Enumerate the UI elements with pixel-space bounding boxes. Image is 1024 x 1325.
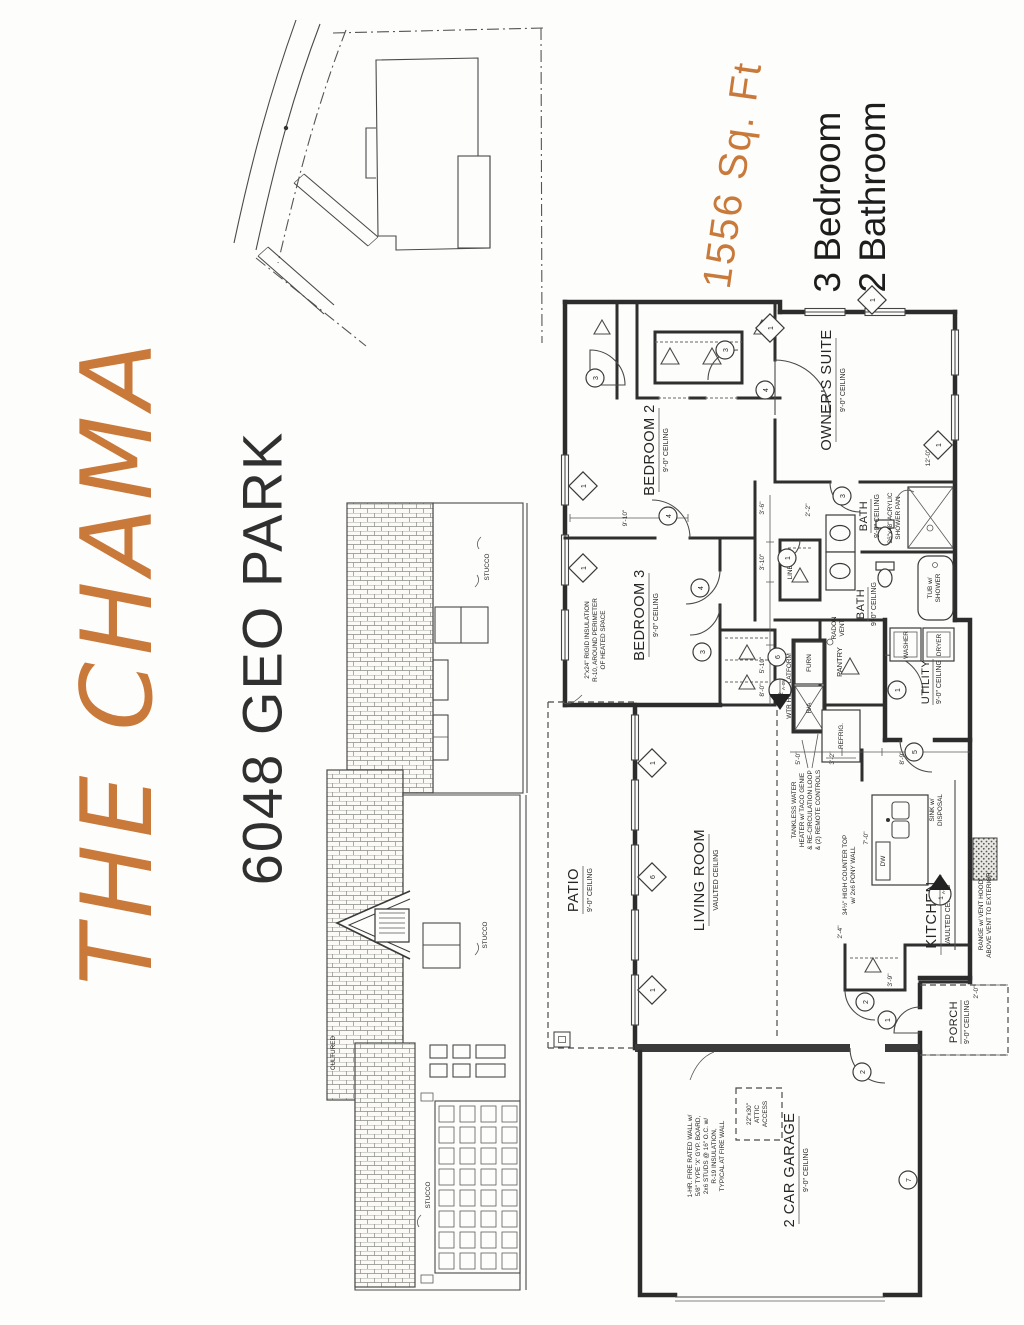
annotation-counter: 34½" HIGH COUNTER TOP w/ 2x6 PONY WALL xyxy=(841,835,857,916)
svg-text:3'-9": 3'-9" xyxy=(887,973,894,987)
svg-text:SINK w/: SINK w/ xyxy=(929,798,936,821)
svg-text:5: 5 xyxy=(912,750,919,754)
room-label-owners-suite: OWNER'S SUITE 9'-0" CEILING xyxy=(819,329,847,450)
svg-text:TANKLESS WATER: TANKLESS WATER xyxy=(791,781,798,838)
svg-text:DRYER: DRYER xyxy=(936,633,943,656)
stucco-label: STUCCO xyxy=(425,1181,432,1208)
square-footage: 1556 Sq. Ft xyxy=(695,59,771,292)
svg-text:DW: DW xyxy=(880,855,887,867)
room-label-patio: PATIO 9'-0" CEILING xyxy=(566,866,594,914)
svg-text:BEDROOM 2: BEDROOM 2 xyxy=(642,404,658,496)
bathroom-count: 2 Bathroom xyxy=(850,101,895,292)
bed-bath-summary: 3 Bedroom 2 Bathroom xyxy=(805,101,895,292)
exterior-walls xyxy=(565,302,970,1052)
svg-text:R/A: R/A xyxy=(806,702,813,713)
label-pantry: PANTRY xyxy=(835,647,844,677)
svg-text:1: 1 xyxy=(650,761,657,765)
svg-text:5/8" TYPE 'X' GYP. BOARD,: 5/8" TYPE 'X' GYP. BOARD, xyxy=(695,1116,702,1197)
stucco-label: STUCCO xyxy=(482,921,489,948)
svg-text:ACCESS: ACCESS xyxy=(762,1101,769,1127)
svg-text:2: 2 xyxy=(860,1070,867,1074)
svg-text:3: 3 xyxy=(700,650,707,654)
svg-text:1: 1 xyxy=(768,326,775,330)
site-driveway xyxy=(258,174,378,314)
garage-walls xyxy=(635,1048,920,1301)
svg-text:2"x24" RIGID INSULATION: 2"x24" RIGID INSULATION xyxy=(584,601,591,679)
svg-text:OF HEATED SPACE: OF HEATED SPACE xyxy=(600,610,607,669)
elevation-side: STUCCO xyxy=(347,503,527,793)
svg-text:3'-10": 3'-10" xyxy=(759,553,766,570)
room-label-bath1: BATH 9'-0" CEILING xyxy=(858,494,881,538)
cultured-stone-label: CULTURED xyxy=(330,1035,337,1070)
address-title: 6048 GEO PARK xyxy=(230,431,295,886)
svg-text:1: 1 xyxy=(785,556,792,560)
svg-text:REFRIG.: REFRIG. xyxy=(838,723,845,749)
svg-text:2 CAR GARAGE: 2 CAR GARAGE xyxy=(782,1113,798,1228)
svg-text:w/ 2x6 PONY WALL: w/ 2x6 PONY WALL xyxy=(850,846,857,905)
svg-text:ABOVE VENT TO EXTERIOR: ABOVE VENT TO EXTERIOR xyxy=(986,872,993,958)
room-label-utility: UTILITY 9'-0" CEILING xyxy=(920,659,943,705)
annotation-shower-pan: 36"x48" ACRYLIC SHOWER PAN xyxy=(887,492,902,543)
svg-text:1: 1 xyxy=(938,896,945,900)
svg-text:PORCH: PORCH xyxy=(948,1001,960,1043)
room-label-living: LIVING ROOM VAULTED CEILING xyxy=(692,829,720,931)
svg-text:A-05: A-05 xyxy=(781,680,787,690)
svg-text:9'-0" CEILING: 9'-0" CEILING xyxy=(874,494,881,538)
firewall-leader xyxy=(690,1052,714,1080)
room-label-bath2: BATH 9'-0" CEILING xyxy=(855,582,878,626)
svg-text:9'-0" CEILING: 9'-0" CEILING xyxy=(803,1148,810,1192)
tankless-leader xyxy=(802,734,818,768)
svg-text:2'-4": 2'-4" xyxy=(837,925,844,939)
svg-text:R-10, AROUND PERIMETER: R-10, AROUND PERIMETER xyxy=(592,598,599,682)
svg-text:SHOWER PAN: SHOWER PAN xyxy=(895,496,902,540)
toilet xyxy=(876,562,894,587)
svg-text:9'-0" CEILING: 9'-0" CEILING xyxy=(840,368,847,412)
svg-text:UTILITY: UTILITY xyxy=(920,660,932,705)
floor-plan: OWNER'S SUITE 9'-0" CEILING BEDROOM 2 9'… xyxy=(540,290,1024,1325)
stucco-label: STUCCO xyxy=(484,553,491,580)
shower-pan xyxy=(908,487,953,548)
svg-text:7'-0": 7'-0" xyxy=(863,831,870,845)
svg-text:& RE-CIRCULATION LOOP: & RE-CIRCULATION LOOP xyxy=(807,770,814,849)
site-house-footprint xyxy=(366,58,490,250)
svg-text:RADON: RADON xyxy=(831,616,838,639)
elevation-drawings: STUCCO xyxy=(315,495,545,1300)
svg-text:OWNER'S SUITE: OWNER'S SUITE xyxy=(819,329,835,450)
svg-text:34½" HIGH COUNTER TOP: 34½" HIGH COUNTER TOP xyxy=(841,835,849,916)
svg-text:1: 1 xyxy=(581,484,588,488)
svg-text:2: 2 xyxy=(863,1000,870,1004)
svg-text:3: 3 xyxy=(840,494,847,498)
svg-text:& (2) REMOTE CONTROLS: & (2) REMOTE CONTROLS xyxy=(815,770,822,850)
site-plan xyxy=(228,8,548,348)
svg-text:4: 4 xyxy=(698,586,705,590)
annotation-attic: 22"x30" ATTIC ACCESS xyxy=(746,1101,769,1127)
svg-text:9'-0" CEILING: 9'-0" CEILING xyxy=(936,660,943,704)
svg-text:4: 4 xyxy=(763,388,770,392)
svg-text:1: 1 xyxy=(650,988,657,992)
svg-text:HEATER w/ TACO GENIE: HEATER w/ TACO GENIE xyxy=(799,773,806,847)
svg-text:7: 7 xyxy=(906,1178,913,1182)
svg-text:9'-0" CEILING: 9'-0" CEILING xyxy=(964,1000,971,1044)
svg-text:1: 1 xyxy=(870,298,877,302)
elevation-front: STUCCO STUCCO CULTURED xyxy=(327,770,526,1290)
svg-text:2x6 STUDS @ 16" O.C. w/: 2x6 STUDS @ 16" O.C. w/ xyxy=(703,1118,710,1194)
svg-text:1: 1 xyxy=(895,688,902,692)
svg-text:8'-0": 8'-0" xyxy=(759,683,766,697)
svg-text:2'-0": 2'-0" xyxy=(973,985,980,999)
svg-text:PANTRY: PANTRY xyxy=(835,647,844,677)
svg-text:3'-6": 3'-6" xyxy=(759,501,766,515)
svg-text:VAULTED CEILING: VAULTED CEILING xyxy=(713,849,720,910)
svg-text:5'-10": 5'-10" xyxy=(759,656,766,673)
svg-text:6: 6 xyxy=(650,875,657,879)
svg-text:BATH: BATH xyxy=(855,589,867,620)
svg-text:TYPICAL AT FIRE WALL: TYPICAL AT FIRE WALL xyxy=(719,1120,726,1191)
svg-text:36"x48" ACRYLIC: 36"x48" ACRYLIC xyxy=(887,492,894,543)
room-label-porch: PORCH 9'-0" CEILING xyxy=(948,1000,971,1044)
svg-text:1: 1 xyxy=(581,566,588,570)
site-street-curves xyxy=(234,20,346,263)
svg-text:SHOWER: SHOWER xyxy=(935,573,942,602)
plan-name-title: THE CHAMA xyxy=(61,335,175,985)
svg-text:9'-0" CEILING: 9'-0" CEILING xyxy=(663,428,670,472)
bedroom-count: 3 Bedroom xyxy=(805,101,850,292)
svg-text:4: 4 xyxy=(666,514,673,518)
svg-text:2'-2": 2'-2" xyxy=(805,503,812,517)
svg-text:TUB w/: TUB w/ xyxy=(927,577,934,598)
svg-text:FURN: FURN xyxy=(806,654,813,672)
room-label-bedroom2: BEDROOM 2 9'-0" CEILING xyxy=(642,404,670,496)
svg-text:9'-0" CEILING: 9'-0" CEILING xyxy=(653,593,660,637)
svg-text:VENT: VENT xyxy=(839,619,846,636)
svg-text:1: 1 xyxy=(936,443,943,447)
svg-text:WASHER: WASHER xyxy=(903,631,910,659)
annotation-insulation: 2"x24" RIGID INSULATION R-10, AROUND PER… xyxy=(584,598,607,682)
svg-text:3: 3 xyxy=(593,376,600,380)
svg-text:BEDROOM 3: BEDROOM 3 xyxy=(632,569,648,661)
garage-door xyxy=(421,1093,520,1283)
scanned-floorplan-sheet: THE CHAMA 6048 GEO PARK 1556 Sq. Ft 3 Be… xyxy=(0,0,1024,1325)
svg-text:5'-0": 5'-0" xyxy=(795,751,802,765)
section-marker-1: 1 A-05 xyxy=(929,874,951,905)
svg-text:1-HR. FIRE RATED WALL w/: 1-HR. FIRE RATED WALL w/ xyxy=(687,1114,694,1197)
svg-text:R-19 INSULATION,: R-19 INSULATION, xyxy=(711,1128,718,1184)
annotation-firewall: 1-HR. FIRE RATED WALL w/ 5/8" TYPE 'X' G… xyxy=(687,1114,726,1197)
svg-text:3: 3 xyxy=(723,348,730,352)
svg-text:3'-2": 3'-2" xyxy=(829,751,836,765)
svg-text:ATTIC: ATTIC xyxy=(754,1105,761,1123)
svg-text:9'-0" CEILING: 9'-0" CEILING xyxy=(587,868,594,912)
front-vents xyxy=(430,1045,505,1077)
svg-text:1: 1 xyxy=(885,1018,892,1022)
annotation-range: RANGE w/ VENT HOOD ABOVE VENT TO EXTERIO… xyxy=(978,872,993,958)
annotation-tankless: TANKLESS WATER HEATER w/ TACO GENIE & RE… xyxy=(791,770,822,850)
room-label-garage: 2 CAR GARAGE 9'-0" CEILING xyxy=(782,1113,810,1228)
svg-text:DISPOSAL: DISPOSAL xyxy=(937,794,944,826)
room-label-bedroom3: BEDROOM 3 9'-0" CEILING xyxy=(632,569,660,661)
svg-text:9'-0" CEILING: 9'-0" CEILING xyxy=(871,582,878,626)
svg-text:PATIO: PATIO xyxy=(566,868,582,912)
svg-text:6: 6 xyxy=(775,655,782,659)
svg-text:22"x30": 22"x30" xyxy=(746,1103,753,1125)
svg-text:BATH: BATH xyxy=(858,501,870,532)
svg-text:LIVING ROOM: LIVING ROOM xyxy=(692,829,708,931)
svg-text:RANGE w/ VENT HOOD: RANGE w/ VENT HOOD xyxy=(978,879,985,950)
